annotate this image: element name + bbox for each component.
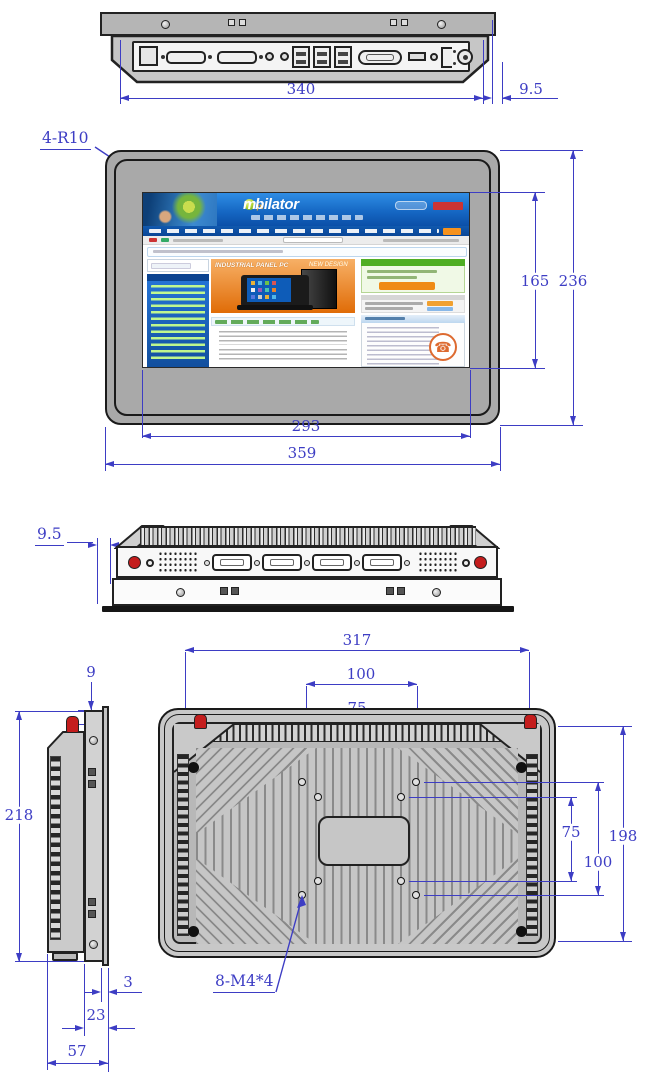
bottom-screwjack-1 (204, 560, 210, 566)
web-phone-badge[interactable]: ☎ (429, 333, 457, 361)
web-subbar-text-right (383, 239, 459, 242)
top-clip-c (390, 19, 397, 26)
top-clip-b (239, 19, 246, 26)
ext-75v-bottom (409, 881, 577, 882)
vga1-screw-left (161, 55, 165, 59)
web-header-photo (143, 193, 217, 226)
bracket-slot (441, 47, 452, 68)
side-profile-red-knob (66, 716, 79, 733)
arrow-23-left (75, 1025, 84, 1031)
web-flag-2[interactable] (161, 238, 169, 242)
ext-165-bottom (470, 368, 545, 369)
side-profile-vents (50, 756, 61, 940)
audio-jack-2 (280, 52, 289, 61)
dim-95-top: 9.5 (519, 81, 543, 98)
arrow-95-left (483, 95, 492, 101)
web-login-header (361, 295, 465, 300)
arrow-3-right (108, 989, 117, 995)
rear-corner-screw-br (516, 926, 527, 937)
web-sidebar-search-field[interactable] (151, 263, 191, 269)
bottom-bezel-screw-left (176, 588, 185, 597)
web-category-header (147, 274, 209, 281)
dimline-23-right-tail (117, 1028, 135, 1029)
ext-218-top (15, 711, 84, 712)
web-promo-text-2 (367, 276, 417, 279)
ext-236-bottom (500, 425, 583, 426)
web-banner-app-dots (251, 281, 255, 285)
web-flag-1[interactable] (149, 238, 157, 242)
vesa75-hole-tl (314, 793, 322, 801)
dim-165: 165 (518, 273, 553, 290)
dimline-9-upper (91, 682, 92, 710)
web-banner-laptop-base (237, 305, 313, 310)
ext-95-left (492, 20, 493, 104)
corner-radius-label: 4-R10 (40, 131, 91, 150)
bottom-red-connector-right (474, 556, 487, 569)
web-login-row-1 (365, 302, 423, 305)
vesa75-hole-br (397, 877, 405, 885)
side-clip-a (88, 768, 96, 776)
side-clip-c (88, 898, 96, 906)
side-flange-screw-top (89, 736, 98, 745)
bottom-screwjack-2 (254, 560, 260, 566)
bottom-bezel-plate (112, 578, 502, 606)
web-partner-logo (395, 201, 427, 210)
dim-317: 317 (343, 632, 372, 649)
hdmi-port (408, 52, 426, 61)
vesa100-hole-tl (298, 778, 306, 786)
ext-293-left (142, 370, 143, 438)
web-tagline (251, 215, 363, 220)
ext-23-left (84, 964, 85, 1036)
serial-port-inner (366, 54, 394, 61)
dim-340: 340 (287, 81, 316, 98)
vesa75-hole-bl (314, 877, 322, 885)
web-banner-badge: NEW DESIGN (309, 262, 348, 268)
rear-red-knob-right (524, 714, 537, 729)
vga-port-1 (166, 51, 206, 64)
usb-block-3 (334, 46, 352, 68)
dim-218: 218 (2, 807, 37, 824)
mount-holes-label: 8-M4*4 (213, 974, 275, 993)
dimline-57 (47, 1063, 108, 1064)
rear-corner-screw-tr (516, 762, 527, 773)
side-flange-screw-bottom (89, 940, 98, 949)
bottom-dsub-3-inner (320, 559, 344, 566)
ext-95b-left (97, 538, 98, 604)
web-login-chip-1[interactable] (427, 301, 453, 306)
dim-9: 9 (86, 664, 96, 681)
dimline-3-left-tail (84, 992, 92, 993)
top-clip-d (401, 19, 408, 26)
vga1-screw-right (208, 55, 212, 59)
ext-100v-top (424, 782, 604, 783)
panel-pc-dimension-drawing: 340 9.5 4-R10 mbilator.pl (0, 0, 646, 1080)
rear-top-fin-row (212, 724, 502, 742)
web-nav-items[interactable] (149, 229, 439, 233)
dim-236: 236 (556, 273, 591, 290)
bottom-screwjack-5 (404, 560, 410, 566)
top-flange-screw-left (161, 20, 170, 29)
web-category-links[interactable] (151, 285, 205, 363)
hdmi-side-jack (430, 53, 438, 61)
dimline-340 (120, 98, 483, 99)
bottom-clip-b (231, 587, 239, 595)
bottom-clip-a (220, 587, 228, 595)
dimline-23-left-tail (62, 1028, 75, 1029)
bottom-jack-right (462, 559, 470, 567)
dimline-95-top (502, 98, 558, 99)
rear-center-plate (318, 816, 410, 866)
dimline-359 (105, 464, 500, 465)
vesa100-hole-tr (412, 778, 420, 786)
power-jack-pin (463, 55, 468, 60)
vga2-screw-right (259, 55, 263, 59)
dim-293: 293 (292, 418, 321, 435)
web-notice-text (153, 250, 283, 253)
dimline-218 (19, 711, 20, 962)
rear-red-knob-left (194, 714, 207, 729)
arrow-3-left (92, 989, 101, 995)
bracket-dot-2 (453, 62, 456, 65)
side-clip-d (88, 910, 96, 918)
dim-57: 57 (67, 1043, 86, 1060)
dimline-293 (142, 436, 470, 437)
web-article-heading-text (215, 320, 319, 324)
web-search-box[interactable] (283, 237, 343, 243)
bottom-clip-c (386, 587, 394, 595)
web-article-paragraph-2 (219, 349, 347, 362)
dim-75v: 75 (558, 824, 583, 841)
side-profile-foot (52, 952, 78, 961)
bottom-vent-left (158, 551, 198, 574)
bottom-dsub-1-inner (220, 559, 244, 566)
side-profile-flange-lip (102, 706, 109, 966)
web-login-chip-2[interactable] (427, 307, 453, 311)
display-screen: mbilator.pl INDUSTRIAL PANEL PC NEW DESI… (142, 192, 470, 368)
vesa100-hole-br (412, 891, 420, 899)
web-news-header-text (365, 317, 405, 320)
dim-100v: 100 (581, 854, 616, 871)
dim-23: 23 (86, 1007, 105, 1024)
bottom-dsub-4-inner (370, 559, 394, 566)
web-nav-highlight[interactable] (443, 228, 461, 235)
ext-218-bottom (15, 961, 84, 962)
ext-198-bottom (558, 941, 632, 942)
dim-359: 359 (288, 445, 317, 462)
bottom-vent-right (418, 551, 458, 574)
bezel-offset-label: 9.5 (35, 527, 64, 546)
web-article-paragraph-1 (219, 331, 347, 345)
ext-293-right (470, 370, 471, 438)
side-clip-b (88, 780, 96, 788)
phone-icon: ☎ (434, 339, 451, 355)
arrow-23-right (108, 1025, 117, 1031)
bottom-clip-d (397, 587, 405, 595)
ext-57-left (47, 954, 48, 1070)
top-flange-screw-right (437, 20, 446, 29)
rear-corner-screw-bl (188, 926, 199, 937)
web-promo-button[interactable] (379, 282, 435, 290)
rj45-port (139, 46, 158, 66)
vesa75-hole-tr (397, 793, 405, 801)
side-profile-flange (84, 710, 104, 962)
dim-100h: 100 (347, 666, 376, 683)
top-clip-a (228, 19, 235, 26)
ext-359-right (500, 427, 501, 471)
usb-block-1 (292, 46, 310, 68)
bottom-jack-left (146, 559, 154, 567)
bottom-red-connector-left (128, 556, 141, 569)
web-logo: mbilator.pl (243, 196, 263, 212)
arrow-95b-left (88, 542, 97, 548)
rear-corner-screw-tl (188, 762, 199, 773)
rear-side-vent-left (177, 754, 189, 936)
web-banner-title: INDUSTRIAL PANEL PC (215, 262, 288, 269)
ext-100v-bottom (424, 895, 604, 896)
vga-port-2 (217, 51, 257, 64)
ext-3-left (101, 968, 102, 1002)
bottom-bezel-screw-right (432, 588, 441, 597)
bottom-heatsink-fins (140, 526, 476, 546)
dimline-100v (598, 782, 599, 895)
bottom-dsub-2-inner (270, 559, 294, 566)
bottom-screwjack-3 (304, 560, 310, 566)
dimline-3-right-tail (117, 992, 142, 993)
web-partner-logo-red (433, 202, 463, 210)
web-promo-text-1 (367, 270, 437, 273)
ext-3-right (108, 968, 109, 1072)
bottom-glass-edge (102, 606, 514, 612)
web-login-row-2 (365, 307, 413, 310)
bracket-dot-1 (453, 50, 456, 53)
dim-3: 3 (123, 974, 133, 991)
dimline-317 (185, 650, 529, 651)
usb-block-2 (313, 46, 331, 68)
mount-holes-leader (268, 888, 312, 998)
web-promo-header (361, 259, 465, 266)
dimline-100h (306, 684, 417, 685)
web-subbar-text (173, 239, 223, 242)
audio-jack-1 (265, 52, 274, 61)
ext-75v-top (409, 797, 577, 798)
bottom-screwjack-4 (354, 560, 360, 566)
dim-198: 198 (606, 828, 641, 845)
web-logo-rest: bilator (255, 196, 299, 213)
